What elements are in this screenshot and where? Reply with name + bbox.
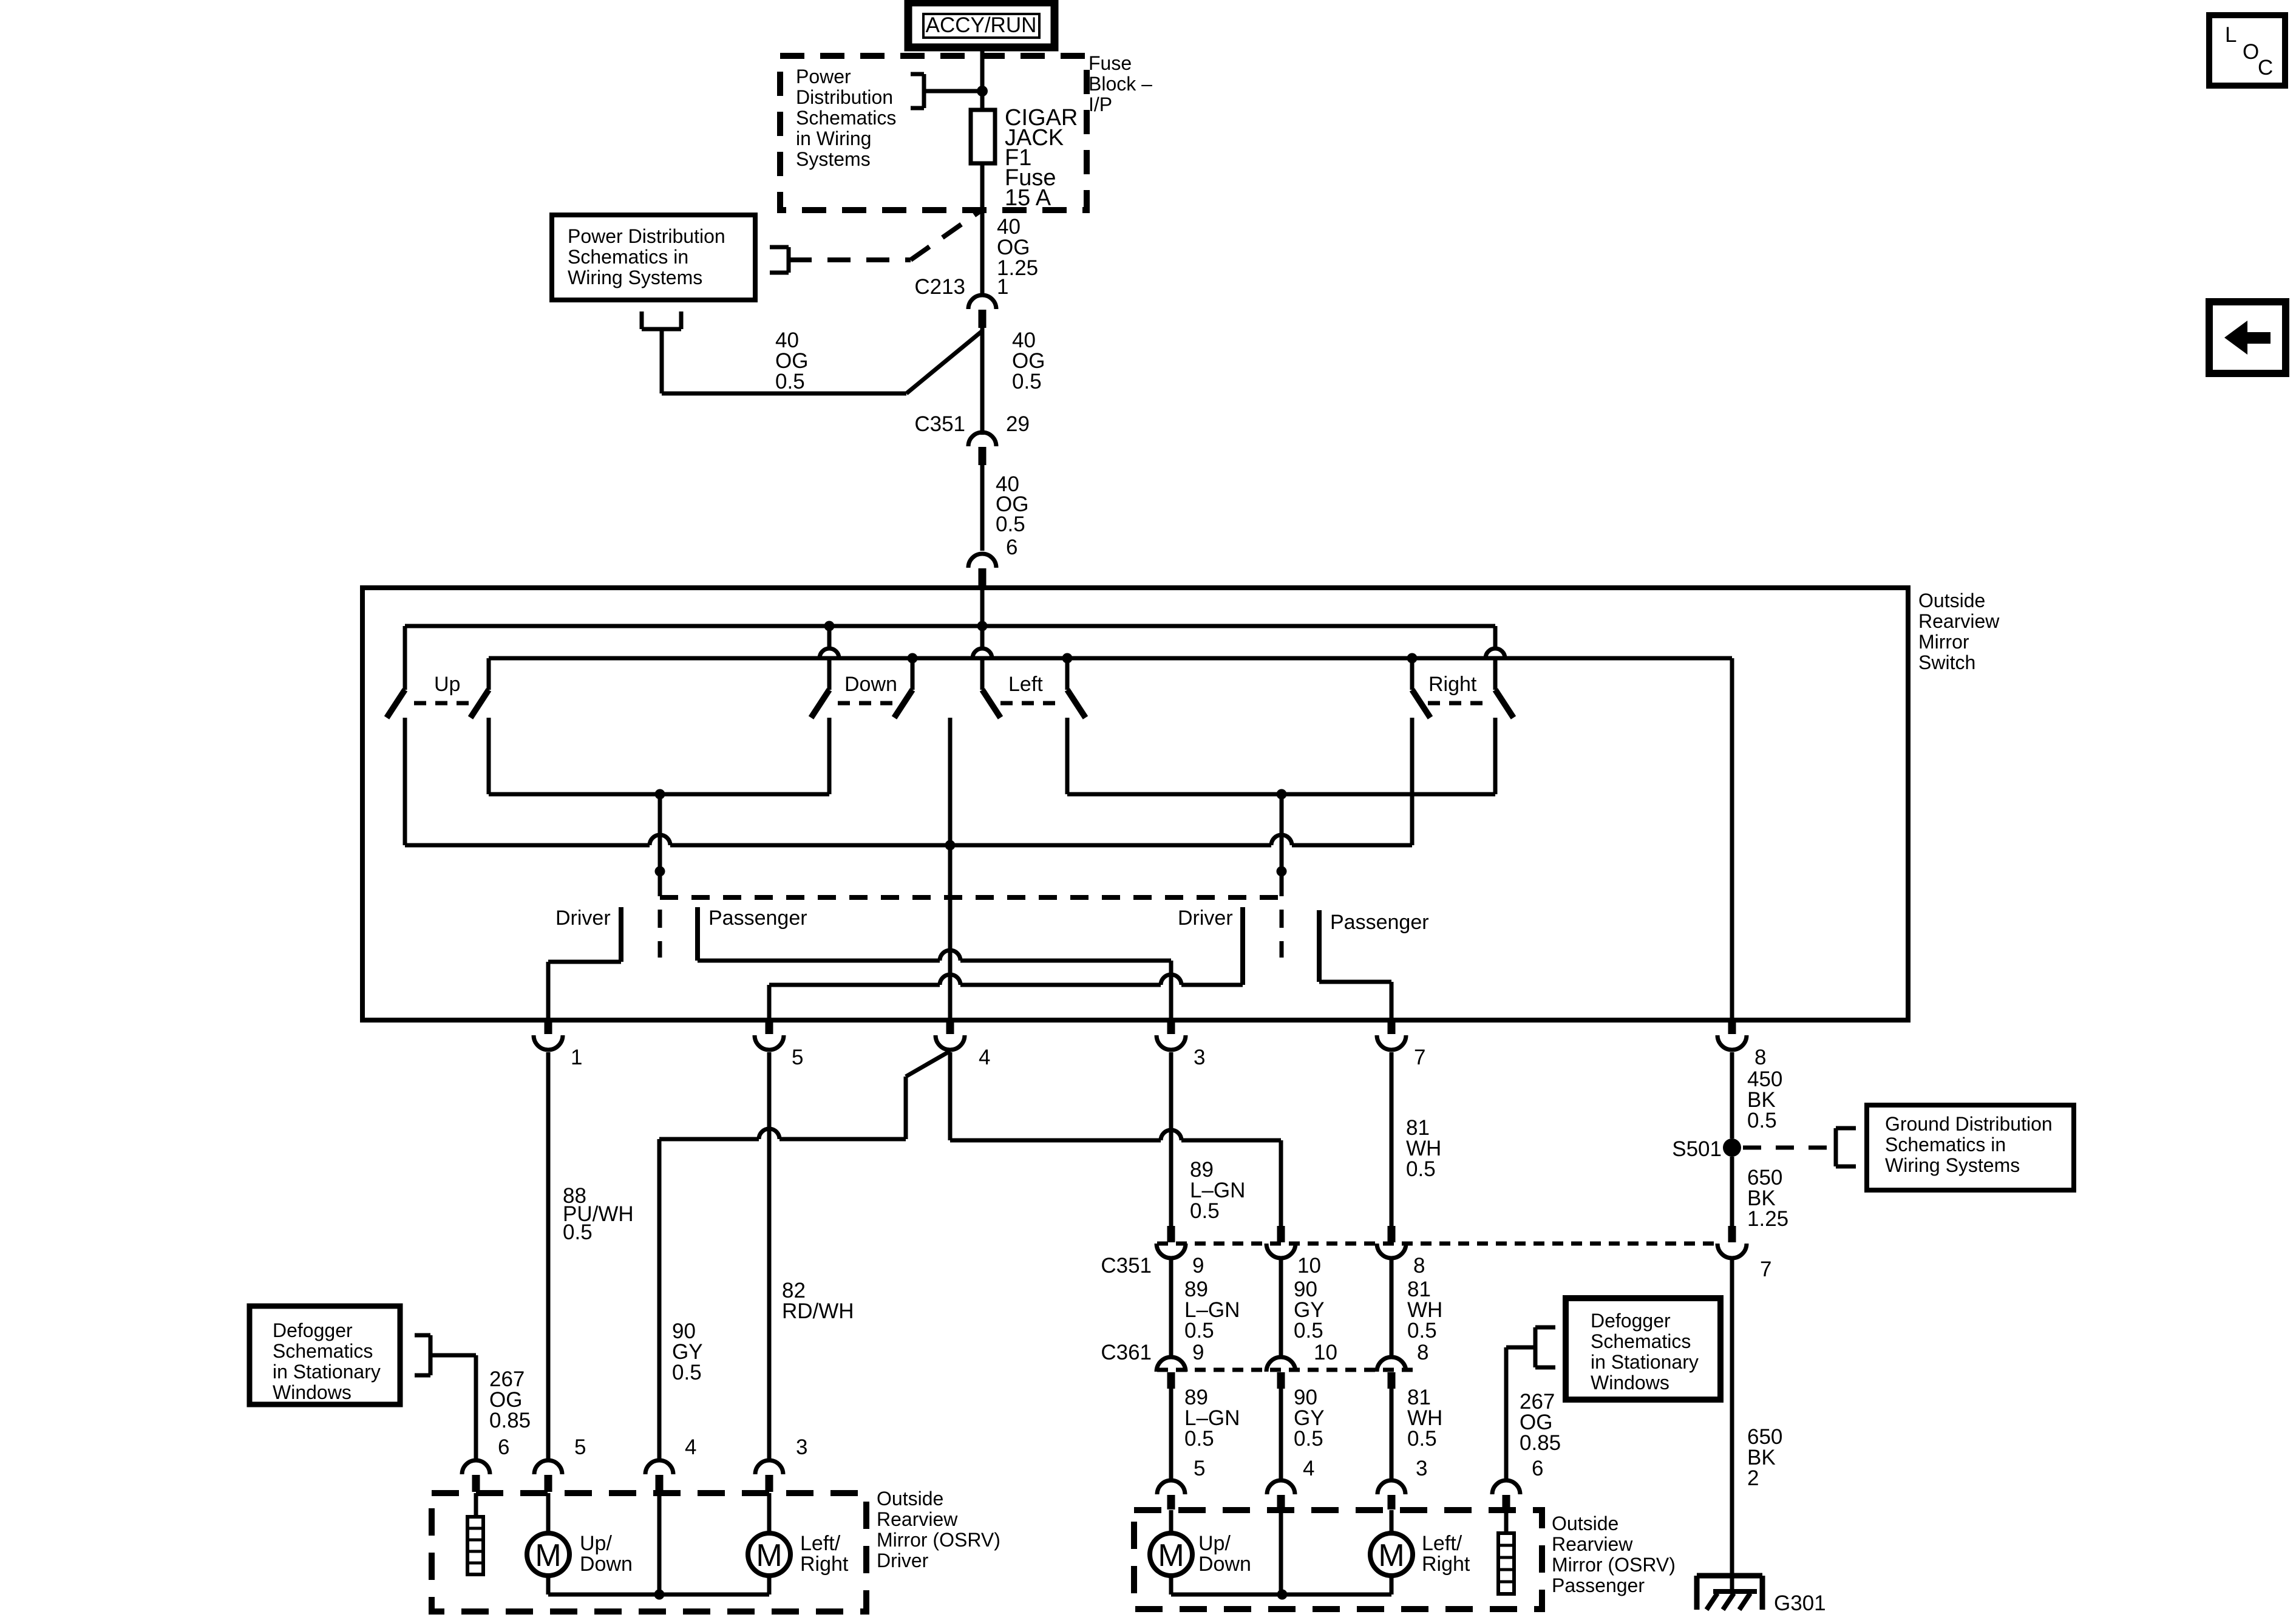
svg-text:O: O: [2243, 40, 2259, 64]
svg-text:4: 4: [1303, 1457, 1314, 1480]
svg-text:10: 10: [1297, 1254, 1321, 1278]
svg-text:Defogger: Defogger: [1591, 1310, 1671, 1332]
svg-text:10: 10: [1314, 1341, 1337, 1364]
svg-text:0.5: 0.5: [1294, 1319, 1323, 1343]
svg-text:0.5: 0.5: [1407, 1427, 1437, 1451]
svg-text:Outside: Outside: [877, 1488, 943, 1509]
svg-text:Schematics in: Schematics in: [1885, 1134, 2006, 1155]
svg-text:Right: Right: [1428, 673, 1477, 696]
svg-text:Down: Down: [844, 673, 897, 696]
svg-text:C351: C351: [1101, 1254, 1152, 1278]
svg-text:Down: Down: [580, 1553, 633, 1576]
svg-text:Mirror (OSRV): Mirror (OSRV): [877, 1529, 1000, 1551]
svg-text:C351: C351: [914, 412, 965, 436]
svg-text:Passenger: Passenger: [1330, 911, 1429, 934]
svg-text:4: 4: [979, 1046, 990, 1069]
svg-text:0.5: 0.5: [1747, 1109, 1777, 1132]
svg-text:6: 6: [498, 1435, 509, 1459]
svg-text:Mirror: Mirror: [1918, 631, 1969, 653]
svg-text:3: 3: [1194, 1046, 1205, 1069]
svg-text:M: M: [535, 1538, 561, 1573]
svg-text:0.85: 0.85: [489, 1409, 531, 1432]
svg-text:Fuse: Fuse: [1089, 52, 1132, 74]
svg-text:C213: C213: [914, 275, 965, 299]
svg-text:7: 7: [1414, 1046, 1425, 1069]
svg-text:9: 9: [1192, 1254, 1204, 1278]
svg-text:Systems: Systems: [796, 148, 871, 170]
svg-text:8: 8: [1417, 1341, 1428, 1364]
svg-text:Rearview: Rearview: [1552, 1533, 1633, 1555]
svg-text:Left: Left: [1008, 673, 1043, 696]
svg-text:Ground Distribution: Ground Distribution: [1885, 1113, 2053, 1135]
svg-text:0.5: 0.5: [672, 1361, 702, 1384]
svg-text:Distribution: Distribution: [796, 86, 893, 108]
svg-text:C361: C361: [1101, 1341, 1152, 1364]
svg-text:6: 6: [1532, 1457, 1543, 1480]
svg-text:Driver: Driver: [555, 907, 611, 930]
svg-text:in Stationary: in Stationary: [1591, 1351, 1699, 1373]
svg-text:Schematics: Schematics: [1591, 1330, 1691, 1352]
svg-text:Outside: Outside: [1552, 1513, 1618, 1534]
svg-text:Down: Down: [1198, 1553, 1251, 1576]
svg-text:Schematics in: Schematics in: [568, 246, 688, 268]
svg-text:0.5: 0.5: [1012, 370, 1042, 393]
svg-text:Switch: Switch: [1918, 652, 1975, 673]
svg-text:Wiring Systems: Wiring Systems: [568, 267, 702, 288]
svg-text:0.5: 0.5: [996, 512, 1025, 536]
svg-text:5: 5: [1194, 1457, 1205, 1480]
svg-text:M: M: [756, 1538, 782, 1573]
svg-text:I/P: I/P: [1089, 94, 1112, 115]
svg-text:L: L: [2225, 23, 2237, 47]
svg-text:ACCY/RUN: ACCY/RUN: [926, 13, 1037, 37]
svg-text:9: 9: [1192, 1341, 1204, 1364]
svg-text:2: 2: [1747, 1466, 1759, 1490]
svg-text:Right: Right: [800, 1553, 849, 1576]
svg-text:Up: Up: [434, 673, 460, 696]
svg-text:in Wiring: in Wiring: [796, 128, 871, 149]
svg-text:1: 1: [997, 275, 1008, 299]
svg-text:0.5: 0.5: [1184, 1427, 1214, 1451]
svg-text:Up/: Up/: [1198, 1532, 1231, 1555]
svg-text:0.85: 0.85: [1520, 1431, 1561, 1455]
svg-text:0.5: 0.5: [1294, 1427, 1323, 1451]
svg-text:in Stationary: in Stationary: [273, 1361, 381, 1383]
svg-text:Passenger: Passenger: [1552, 1574, 1645, 1596]
svg-text:Power Distribution: Power Distribution: [568, 225, 725, 247]
svg-text:Up/: Up/: [580, 1532, 612, 1555]
svg-text:5: 5: [792, 1046, 803, 1069]
svg-text:Driver: Driver: [877, 1550, 929, 1571]
svg-text:3: 3: [796, 1435, 807, 1459]
svg-text:Driver: Driver: [1178, 907, 1233, 930]
svg-text:0.5: 0.5: [775, 370, 805, 393]
svg-text:Wiring Systems: Wiring Systems: [1885, 1154, 2020, 1176]
svg-text:Outside: Outside: [1918, 590, 1985, 611]
svg-text:29: 29: [1006, 412, 1030, 436]
svg-text:Schematics: Schematics: [796, 107, 896, 129]
svg-text:G301: G301: [1774, 1591, 1826, 1615]
svg-text:RD/WH: RD/WH: [782, 1299, 854, 1323]
svg-text:8: 8: [1413, 1254, 1425, 1278]
svg-text:8: 8: [1754, 1046, 1766, 1069]
svg-text:Block –: Block –: [1089, 73, 1152, 95]
svg-text:Windows: Windows: [1591, 1372, 1669, 1394]
svg-text:0.5: 0.5: [1406, 1157, 1436, 1181]
svg-text:Left/: Left/: [800, 1532, 841, 1555]
svg-text:Right: Right: [1422, 1553, 1470, 1576]
svg-text:Rearview: Rearview: [877, 1508, 958, 1530]
svg-text:5: 5: [574, 1435, 586, 1459]
svg-text:6: 6: [1006, 536, 1017, 559]
svg-text:0.5: 0.5: [563, 1220, 593, 1244]
svg-text:M: M: [1158, 1538, 1184, 1573]
svg-text:7: 7: [1760, 1258, 1771, 1281]
svg-text:Defogger: Defogger: [273, 1319, 353, 1341]
svg-text:1.25: 1.25: [1747, 1207, 1788, 1231]
svg-text:M: M: [1378, 1538, 1404, 1573]
svg-text:0.5: 0.5: [1407, 1319, 1437, 1343]
svg-text:3: 3: [1416, 1457, 1427, 1480]
svg-text:4: 4: [685, 1435, 696, 1459]
svg-text:Left/: Left/: [1422, 1532, 1462, 1555]
svg-text:Power: Power: [796, 66, 851, 87]
svg-text:Windows: Windows: [273, 1381, 352, 1403]
svg-text:Schematics: Schematics: [273, 1340, 373, 1362]
svg-text:Passenger: Passenger: [708, 907, 807, 930]
svg-text:Mirror (OSRV): Mirror (OSRV): [1552, 1554, 1676, 1576]
svg-text:C: C: [2258, 56, 2273, 80]
svg-text:1: 1: [571, 1046, 582, 1069]
svg-text:0.5: 0.5: [1184, 1319, 1214, 1343]
svg-text:Rearview: Rearview: [1918, 610, 2000, 632]
svg-text:15 A: 15 A: [1005, 185, 1051, 211]
svg-text:S501: S501: [1672, 1137, 1722, 1161]
svg-text:0.5: 0.5: [1190, 1199, 1220, 1223]
